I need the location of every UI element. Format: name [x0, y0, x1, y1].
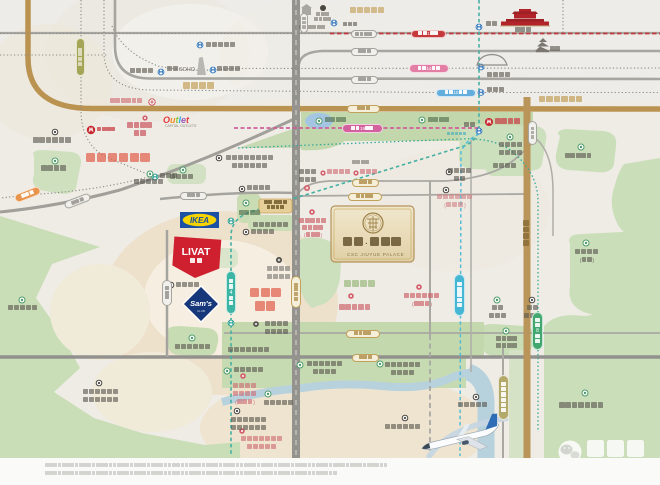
svg-text:CLUB: CLUB: [197, 309, 205, 313]
svg-text:LIVAT: LIVAT: [182, 246, 211, 258]
svg-text:Sam's: Sam's: [190, 299, 212, 308]
svg-text:IKEA: IKEA: [190, 216, 209, 225]
